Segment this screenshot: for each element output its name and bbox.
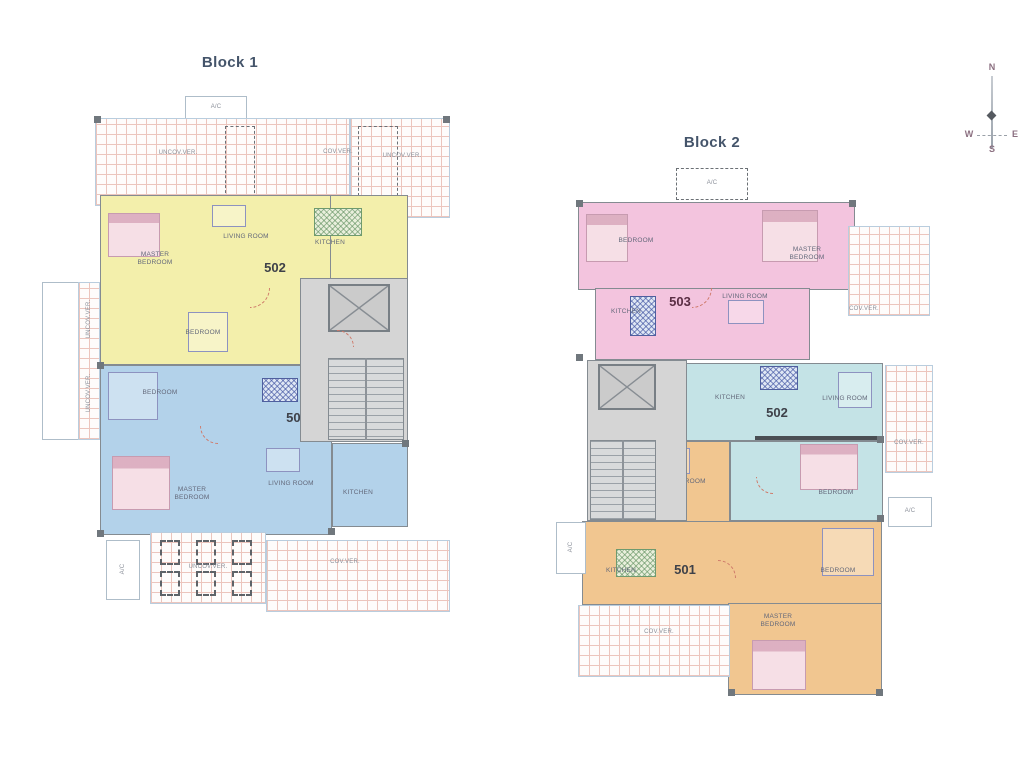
wall-pier	[402, 440, 409, 447]
block1-top-veranda	[95, 118, 350, 206]
block1-veranda-label: COV.VER.	[305, 559, 385, 565]
block1-veranda-label: UNCOV.VER.	[372, 153, 432, 159]
pergola-cell	[196, 571, 216, 596]
furniture-bed	[800, 444, 858, 490]
elevator-x-icon	[330, 286, 388, 330]
room-label-kitchen: KITCHEN	[300, 239, 360, 247]
room-label-living-room: LIVING ROOM	[258, 480, 324, 488]
compass-east-west-line	[977, 135, 1007, 136]
wall-pier	[576, 354, 583, 361]
block2-ac-left-label: A/C	[568, 527, 574, 567]
wall-segment	[755, 436, 880, 440]
block1-ac-top-label: A/C	[186, 104, 246, 110]
furniture-sofa	[212, 205, 246, 227]
wall-pier	[849, 200, 856, 207]
block2-right-mid-veranda	[885, 365, 933, 473]
block1-veranda-label: UNCOV.VER.	[178, 564, 238, 570]
room-label-kitchen: KITCHEN	[600, 308, 652, 316]
furniture-kitchen-table	[314, 208, 362, 236]
block1-ac-bottom-label: A/C	[120, 549, 126, 589]
room-label-kitchen: KITCHEN	[328, 489, 388, 497]
wall-pier	[576, 200, 583, 207]
block2-veranda-label: COV.VER.	[624, 629, 694, 635]
room-label-master-bedroom: MASTER BEDROOM	[125, 251, 185, 267]
wall-pier	[97, 362, 104, 369]
apartment-number-502: 502	[752, 405, 802, 420]
wall-pier	[877, 515, 884, 522]
floor-plan-canvas: Block 1 A/C UNCOV.VER. COV.VER. UNCOV.VE…	[0, 0, 1024, 768]
block1-title: Block 1	[168, 54, 292, 71]
room-label-bedroom: BEDROOM	[608, 237, 664, 245]
elevator-x-icon	[600, 366, 654, 408]
block1-pergola-column	[225, 126, 255, 198]
room-label-master-bedroom: MASTER BEDROOM	[778, 246, 836, 262]
pergola-cell	[232, 540, 252, 565]
block1-bottom-veranda	[266, 540, 450, 612]
pergola-cell	[160, 540, 180, 565]
room-label-living-room: LIVING ROOM	[812, 395, 878, 403]
block2-veranda-label: COV.VER.	[879, 440, 939, 446]
room-label-living-room: LIVING ROOM	[214, 233, 278, 241]
block1-veranda-label: UNCOV.VER.	[86, 289, 92, 349]
compass-needle-diamond	[987, 111, 997, 121]
room-label-bedroom: BEDROOM	[132, 389, 188, 397]
compass-south-label: S	[984, 144, 1000, 154]
pergola-cell	[196, 540, 216, 565]
room-label-kitchen: KITCHEN	[702, 394, 758, 402]
apartment-number-502: 502	[250, 260, 300, 275]
furniture-bed	[752, 640, 806, 690]
block2-elevator	[598, 364, 656, 410]
block2-veranda-label: COV.VER.	[834, 306, 894, 312]
room-label-bedroom: BEDROOM	[175, 329, 231, 337]
wall-pier	[328, 528, 335, 535]
block1-veranda-label: UNCOV.VER.	[140, 150, 216, 156]
block2-right-upper-veranda	[848, 226, 930, 316]
wall-pier	[94, 116, 101, 123]
block1-stair-divider	[365, 358, 367, 440]
block1-veranda-label: UNCOV.VER.	[86, 363, 92, 423]
furniture-dining-table	[262, 378, 298, 402]
wall-pier	[877, 436, 884, 443]
block1-apartment-501	[332, 443, 408, 527]
block1-pergola-column	[358, 126, 398, 196]
wall-pier	[876, 689, 883, 696]
block2-ac-top-label: A/C	[682, 180, 742, 186]
room-label-bedroom: BEDROOM	[808, 567, 868, 575]
apartment-number-501: 501	[660, 562, 710, 577]
block2-stair-divider	[622, 440, 624, 520]
furniture-sofa	[728, 300, 764, 324]
pergola-cell	[232, 571, 252, 596]
wall-pier	[728, 689, 735, 696]
block2-title: Block 2	[650, 134, 774, 151]
furniture-kitchen-table	[760, 366, 798, 390]
compass-north-label: N	[984, 62, 1000, 72]
wall-pier	[97, 530, 104, 537]
furniture-sofa	[266, 448, 300, 472]
block2-bottom-veranda	[578, 605, 730, 677]
pergola-cell	[160, 571, 180, 596]
room-label-living-room: LIVING ROOM	[712, 293, 778, 301]
block1-elevator	[328, 284, 390, 332]
block1-veranda-label: COV.VER.	[300, 149, 376, 155]
wall-pier	[443, 116, 450, 123]
room-label-master-bedroom: MASTER BEDROOM	[162, 486, 222, 502]
block2-ac-right-label: A/C	[890, 508, 930, 514]
compass-west-label: W	[962, 129, 976, 139]
room-label-kitchen: KITCHEN	[593, 567, 649, 575]
compass-east-label: E	[1008, 129, 1022, 139]
room-label-bedroom: BEDROOM	[806, 489, 866, 497]
room-label-master-bedroom: MASTER BEDROOM	[748, 613, 808, 629]
